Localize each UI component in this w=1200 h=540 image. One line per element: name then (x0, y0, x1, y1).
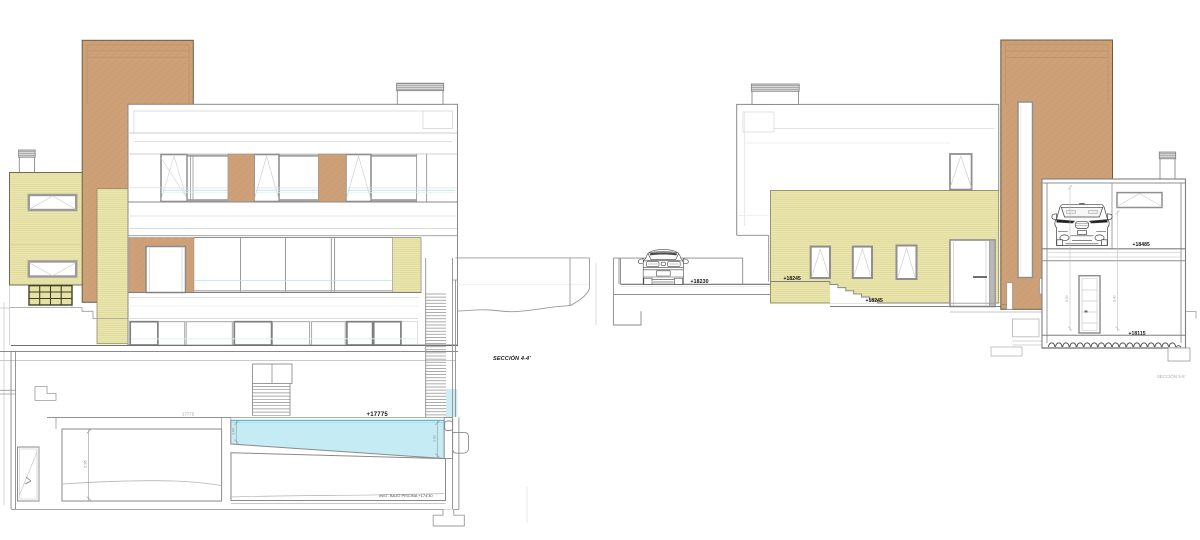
svg-text:+18115: +18115 (1129, 331, 1146, 337)
svg-text:+18245: +18245 (866, 298, 884, 304)
svg-text:+17775: +17775 (367, 412, 389, 418)
svg-text:+18485: +18485 (1133, 242, 1151, 248)
svg-text:SECCIÓN 5-5': SECCIÓN 5-5' (1157, 374, 1186, 379)
svg-text:SECCIÓN 4-4': SECCIÓN 4-4' (493, 355, 531, 362)
svg-text:1.62: 1.62 (432, 435, 436, 442)
svg-text:3.50: 3.50 (1065, 295, 1069, 302)
svg-text:3.40: 3.40 (1113, 295, 1117, 302)
svg-text:1.66: 1.66 (232, 428, 236, 435)
svg-text:+18230: +18230 (691, 279, 709, 285)
svg-text:2.95: 2.95 (83, 459, 88, 468)
svg-text:17775: 17775 (182, 412, 195, 417)
svg-text:+18245: +18245 (784, 276, 802, 282)
svg-text:INST. BAJO PISCINA +174'30: INST. BAJO PISCINA +174'30 (379, 493, 433, 498)
